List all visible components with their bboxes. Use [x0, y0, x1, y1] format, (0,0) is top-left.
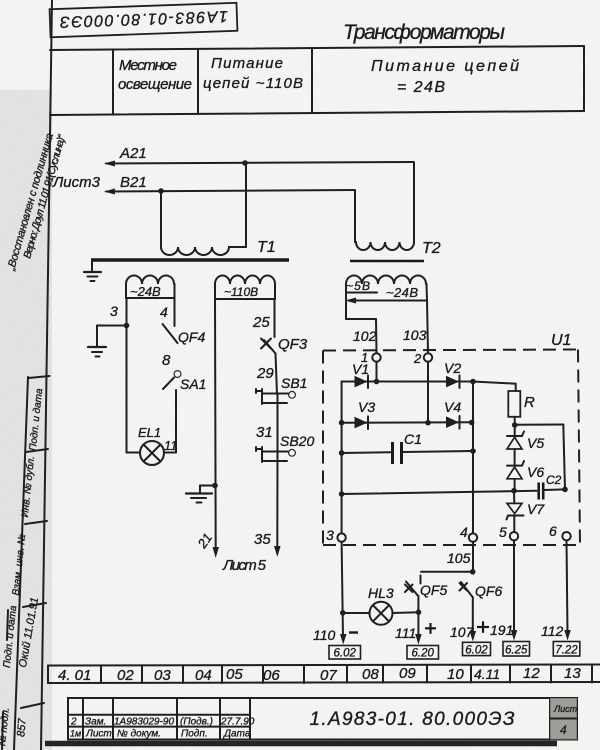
svg-text:110: 110: [313, 627, 336, 643]
svg-text:07: 07: [320, 667, 337, 684]
svg-text:09: 09: [399, 665, 416, 682]
svg-text:QF5: QF5: [420, 582, 447, 598]
svg-text:= 24В: = 24В: [397, 79, 445, 96]
svg-text:цепей ~110В: цепей ~110В: [203, 75, 303, 92]
svg-text:05: 05: [226, 666, 243, 683]
svg-text:1А983029-90: 1А983029-90: [114, 717, 174, 728]
svg-text:Лист 5: Лист 5: [222, 557, 267, 574]
svg-text:25: 25: [252, 314, 270, 331]
svg-text:102: 102: [353, 328, 377, 344]
svg-text:4: 4: [160, 304, 168, 320]
svg-text:105: 105: [447, 550, 471, 566]
svg-text:QF6: QF6: [475, 583, 502, 599]
svg-text:Лист: Лист: [85, 729, 112, 740]
svg-text:С2: С2: [546, 473, 562, 487]
svg-text:В21: В21: [120, 174, 147, 191]
svg-text:Лист: Лист: [553, 704, 578, 714]
svg-text:QF3: QF3: [278, 336, 308, 353]
svg-text:6.20: 6.20: [412, 648, 435, 660]
svg-text:6: 6: [549, 523, 557, 539]
svg-text:4.11: 4.11: [474, 666, 500, 682]
svg-text:2: 2: [70, 717, 77, 728]
svg-text:~24В: ~24В: [386, 285, 418, 300]
svg-text:освещение: освещение: [118, 76, 192, 93]
svg-text:191: 191: [490, 622, 513, 638]
svg-text:10: 10: [447, 666, 464, 683]
svg-text:Трансформаторы: Трансформаторы: [343, 21, 506, 44]
svg-text:V3: V3: [358, 399, 375, 415]
svg-text:857: 857: [15, 717, 29, 737]
svg-text:27.7.90: 27.7.90: [220, 717, 255, 728]
svg-text:5: 5: [499, 524, 507, 540]
svg-text:103: 103: [403, 327, 427, 343]
svg-text:V4: V4: [444, 399, 461, 415]
svg-text:29: 29: [256, 365, 274, 382]
svg-text:35: 35: [254, 531, 271, 548]
svg-text:Местное: Местное: [119, 57, 177, 74]
svg-text:V2: V2: [444, 360, 461, 376]
svg-text:112: 112: [541, 623, 564, 639]
svg-text:Лист3: Лист3: [52, 174, 101, 191]
svg-text:С1: С1: [404, 431, 422, 447]
svg-text:SA1: SA1: [180, 376, 206, 392]
svg-text:SB1: SB1: [281, 375, 307, 391]
svg-text:3: 3: [326, 527, 334, 543]
svg-text:107: 107: [450, 624, 475, 640]
svg-text:7.22: 7.22: [555, 645, 578, 657]
svg-text:03: 03: [154, 667, 171, 684]
svg-text:EL1: EL1: [138, 425, 161, 440]
svg-text:1.А983-01. 80.000ЭЗ: 1.А983-01. 80.000ЭЗ: [310, 709, 515, 730]
svg-text:SB20: SB20: [280, 433, 314, 449]
svg-text:~110В: ~110В: [224, 285, 258, 299]
svg-text:02: 02: [117, 667, 134, 684]
svg-text:V7: V7: [527, 501, 545, 517]
svg-text:08: 08: [362, 666, 379, 683]
svg-text:8: 8: [162, 352, 171, 369]
svg-text:(Подв.): (Подв.): [180, 717, 213, 728]
svg-text:Т2: Т2: [422, 240, 441, 257]
svg-text:2: 2: [413, 351, 422, 366]
svg-text:Дата: Дата: [223, 729, 251, 740]
svg-text:111: 111: [395, 625, 416, 641]
svg-text:U1: U1: [551, 332, 571, 349]
svg-text:V6: V6: [527, 464, 544, 480]
svg-text:4: 4: [460, 524, 468, 540]
svg-text:12: 12: [523, 665, 540, 682]
svg-text:Т1: Т1: [257, 239, 276, 256]
svg-text:~5В: ~5В: [346, 279, 370, 293]
svg-text:4. 01: 4. 01: [58, 667, 91, 684]
svg-text:06: 06: [263, 667, 280, 684]
svg-text:Подп.: Подп.: [181, 729, 208, 740]
svg-text:~24В: ~24В: [130, 284, 161, 299]
svg-text:Питание: Питание: [211, 55, 283, 72]
svg-text:R: R: [524, 394, 535, 411]
svg-text:V1: V1: [352, 361, 369, 377]
svg-text:31: 31: [256, 424, 273, 441]
svg-text:6.02: 6.02: [465, 645, 488, 657]
svg-text:QF4: QF4: [178, 329, 205, 345]
svg-text:3: 3: [110, 303, 118, 319]
svg-text:11: 11: [164, 438, 178, 453]
svg-text:1м: 1м: [70, 729, 81, 739]
svg-text:04: 04: [195, 667, 212, 684]
svg-text:HL3: HL3: [368, 585, 394, 601]
svg-text:Зам.: Зам.: [85, 717, 106, 728]
svg-text:V5: V5: [527, 435, 544, 451]
svg-text:6.02: 6.02: [334, 648, 357, 660]
svg-text:13: 13: [564, 665, 581, 682]
svg-text:А21: А21: [119, 145, 147, 162]
svg-text:№ докум.: № докум.: [117, 729, 161, 740]
svg-text:4: 4: [560, 723, 567, 737]
svg-text:6.25: 6.25: [505, 645, 528, 657]
